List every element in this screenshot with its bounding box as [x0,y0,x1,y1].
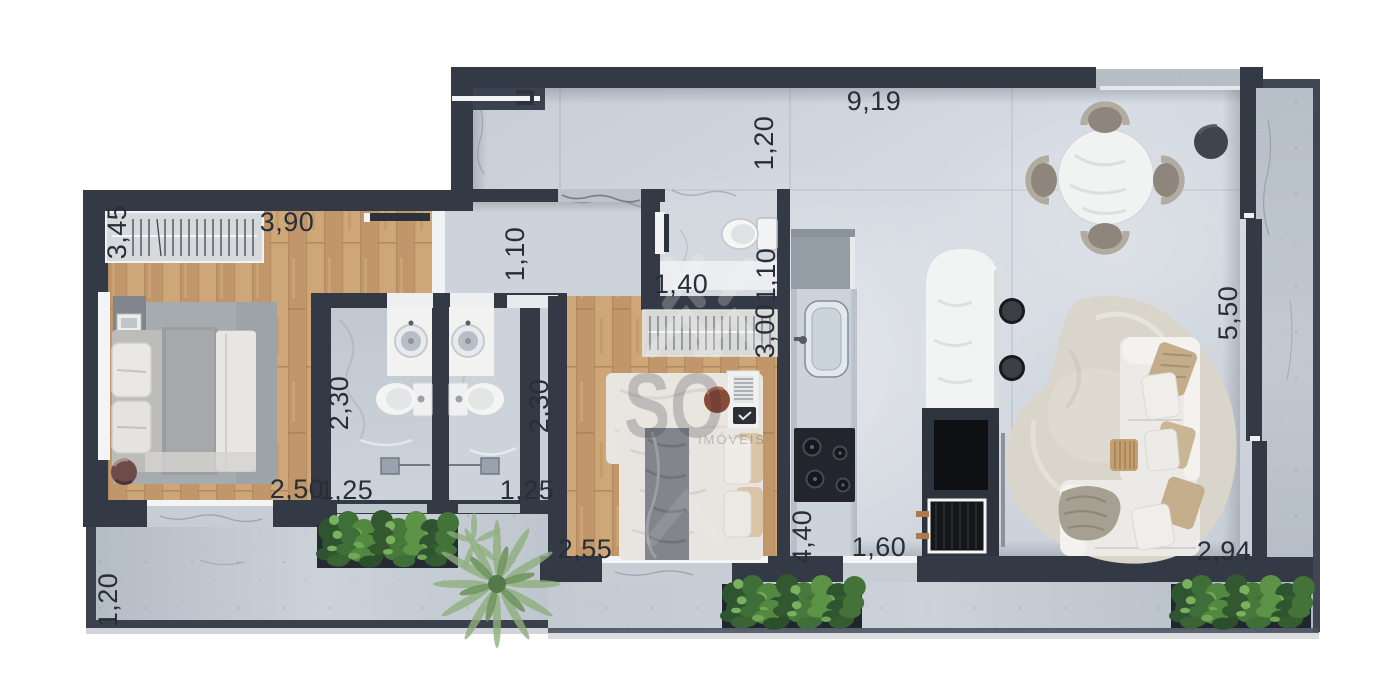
svg-text:2,55: 2,55 [558,534,613,564]
svg-text:2,94: 2,94 [1197,536,1252,566]
svg-text:1,40: 1,40 [654,269,709,299]
svg-text:2,50: 2,50 [270,474,325,504]
svg-text:1,60: 1,60 [852,532,907,562]
svg-text:2,30: 2,30 [524,379,554,434]
svg-text:2,30: 2,30 [324,376,354,431]
svg-text:IMÓVEIS: IMÓVEIS [698,432,766,447]
svg-text:1,10: 1,10 [751,248,781,303]
svg-text:4,40: 4,40 [787,510,817,565]
svg-text:5,50: 5,50 [1213,286,1243,341]
svg-text:1,10: 1,10 [500,227,530,282]
svg-text:9,19: 9,19 [847,86,902,116]
svg-text:1,25: 1,25 [500,475,555,505]
svg-text:1,20: 1,20 [93,573,123,628]
svg-text:1,20: 1,20 [749,116,779,171]
svg-text:1,25: 1,25 [319,475,374,505]
svg-text:3,00: 3,00 [750,304,780,359]
svg-text:3,45: 3,45 [102,205,132,260]
svg-text:3,90: 3,90 [260,207,315,237]
